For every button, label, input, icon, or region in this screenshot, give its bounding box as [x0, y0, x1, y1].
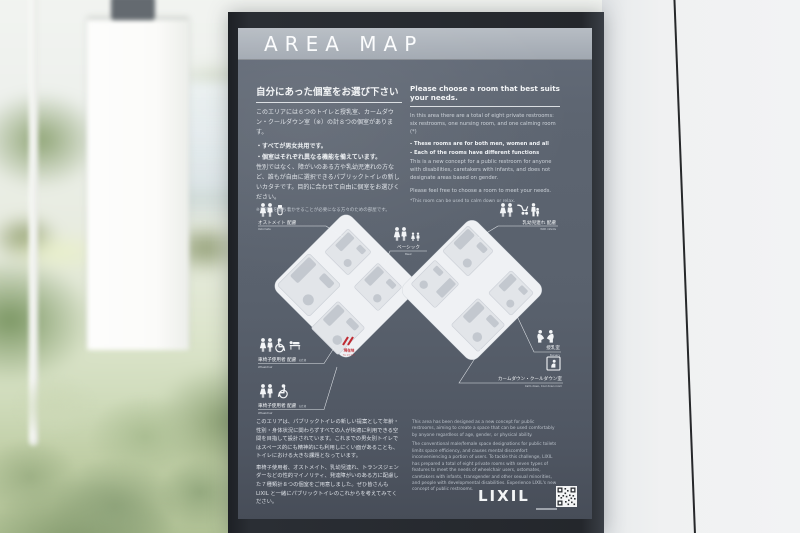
floor-map: オストメイト 配慮 Ostomate ベーシック Basic: [250, 190, 582, 422]
label-calm-en: Calm down, Cool down room: [525, 384, 563, 388]
label-wheelchair-right-jp: 車椅子使用者 配慮: [258, 356, 297, 363]
sign-title: AREA MAP: [264, 32, 423, 56]
label-ostomate-en: Ostomate: [258, 227, 271, 231]
sign-header-band: AREA MAP: [238, 28, 592, 60]
intro-en-para1: In this area there are a total of eight …: [410, 112, 560, 136]
adult-with-child-icon: [531, 203, 539, 216]
ostomate-pouch-icon: [278, 205, 282, 215]
label-wheelchair-left-en: Wheelchair: [258, 411, 274, 415]
label-ostomate: オストメイト 配慮 Ostomate: [258, 203, 297, 231]
woman-icon: [394, 227, 400, 241]
label-infants-jp: 乳幼児連れ 配慮: [522, 219, 556, 226]
footer-jp-para2: 車椅子使用者、オストメイト、乳幼児連れ、トランスジェンダーなどの性的マイノリティ…: [256, 464, 402, 507]
label-nursery-jp: 授乳室: [546, 344, 560, 351]
area-map-sign: AREA MAP 自分にあった個室をお選び下さい このエリアには６つのトイレと授…: [228, 12, 604, 533]
nursing-icon: [537, 330, 544, 343]
wall-seam: [673, 0, 696, 533]
lixil-logo: LIXIL: [478, 486, 530, 506]
man-small-icon: [416, 233, 419, 241]
intro-jp-heading: 自分にあった個室をお選び下さい: [256, 84, 402, 103]
footer-japanese: このエリアは、パブリックトイレの新しい提案として年齢・性別・身体状況に関わらずす…: [256, 418, 402, 510]
label-wheelchair-left-jp: 車椅子使用者 配慮: [258, 402, 297, 409]
intro-en-para2: This is a new concept for a public restr…: [410, 158, 560, 182]
woman-icon: [260, 384, 266, 398]
photo-of-area-map-sign: AREA MAP 自分にあった個室をお選び下さい このエリアには６つのトイレと授…: [0, 0, 800, 533]
man-icon: [507, 203, 512, 217]
label-ostomate-jp: オストメイト 配慮: [258, 219, 297, 226]
label-basic-en: Basic: [405, 252, 412, 256]
label-wheelchair-right-en: Wheelchair: [258, 365, 274, 369]
label-nursery-en: Nursery: [550, 353, 561, 357]
white-pillar: [87, 20, 189, 350]
wheelchair-icon: [279, 384, 288, 398]
man-icon: [401, 227, 406, 241]
label-wheelchair-left-spec: 左仕様: [299, 404, 307, 408]
label-wheelchair-right-spec: 右仕様: [299, 358, 307, 362]
marker-en: You are here: [343, 354, 356, 357]
woman-icon: [260, 203, 266, 217]
brand-row: LIXIL: [478, 486, 577, 507]
stroller-icon: [518, 205, 528, 215]
qr-code: [556, 486, 577, 507]
woman-icon: [260, 338, 266, 352]
intro-en-heading: Please choose a room that best suits you…: [410, 84, 560, 107]
qr-caption-bar: [536, 508, 557, 510]
foreground-plant: [0, 352, 257, 533]
label-basic-jp: ベーシック: [397, 245, 420, 251]
intro-jp-bullet1: ・すべてが男女共用です。: [256, 142, 402, 152]
sign-panel: AREA MAP 自分にあった個室をお選び下さい このエリアには６つのトイレと授…: [238, 28, 592, 519]
woman-small-icon: [411, 233, 415, 241]
label-wheelchair-left: 車椅子使用者 配慮 左仕様 Wheelchair: [258, 384, 307, 415]
label-wheelchair-right: 車椅子使用者 配慮 右仕様 Wheelchair: [258, 338, 307, 369]
label-basic: ベーシック Basic: [394, 227, 420, 256]
pillar-cap: [111, 0, 155, 20]
label-calm-down: カームダウン・クールダウン室 Calm down, Cool down room: [498, 357, 563, 388]
intro-en-bullet2: - Each of the rooms have different funct…: [410, 149, 560, 157]
changing-table-icon: [290, 341, 301, 350]
right-wall: [602, 0, 800, 533]
label-calm-jp: カームダウン・クールダウン室: [498, 375, 563, 382]
calm-down-room-icon: [547, 357, 560, 370]
label-infants-en: With infants: [540, 227, 556, 231]
label-nursery: 授乳室 Nursery: [537, 330, 560, 357]
marker-jp: 現在地: [344, 348, 355, 353]
intro-en-bullet1: - These rooms are for both men, women an…: [410, 140, 560, 148]
wheelchair-icon: [276, 338, 285, 352]
man-icon: [267, 338, 272, 352]
nursing-icon: [547, 330, 554, 343]
intro-jp-para1: このエリアには６つのトイレと授乳室、カームダウン・クールダウン室（※）の計８つの…: [256, 108, 402, 138]
intro-jp-bullet2: ・個室はそれぞれ異なる機能を備えています。: [256, 153, 402, 163]
footer-jp-para1: このエリアは、パブリックトイレの新しい提案として年齢・性別・身体状況に関わらずす…: [256, 418, 402, 461]
woman-icon: [500, 203, 506, 217]
man-icon: [267, 203, 272, 217]
man-icon: [267, 384, 272, 398]
footer-en-para1: This area has been designed as a new con…: [412, 420, 558, 439]
label-with-infants: 乳幼児連れ 配慮 With infants: [500, 203, 557, 231]
